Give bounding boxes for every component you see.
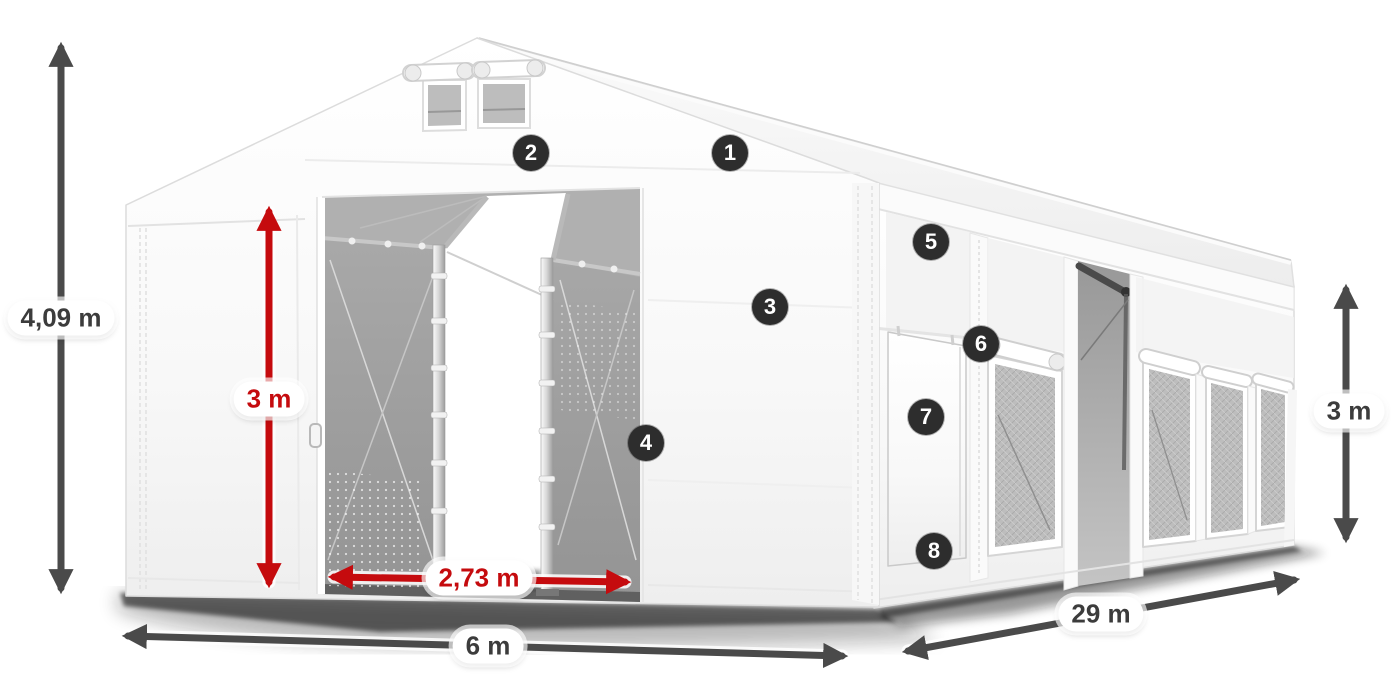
side-height-label: 3 m	[1314, 394, 1385, 429]
marker-8[interactable]: 8	[916, 533, 952, 569]
front-door-interior	[310, 188, 643, 602]
tent-dimension-diagram: 4,09 m 3 m 2,73 m 6 m 29 m 3 m 1 2 3 4 5…	[0, 0, 1400, 700]
side-window-2	[1143, 356, 1196, 547]
marker-7[interactable]: 7	[908, 399, 944, 435]
side-door-panel	[888, 326, 966, 566]
door-height-label: 3 m	[234, 382, 305, 417]
marker-2[interactable]: 2	[513, 135, 549, 171]
door-width-label: 2,73 m	[426, 561, 533, 596]
length-label: 29 m	[1058, 597, 1143, 632]
marker-1[interactable]: 1	[712, 135, 748, 171]
side-window-3	[1206, 372, 1248, 539]
side-window-1	[984, 337, 1065, 556]
marker-4[interactable]: 4	[628, 425, 664, 461]
marker-5[interactable]: 5	[913, 224, 949, 260]
tent-illustration	[0, 0, 1400, 700]
side-window-4	[1256, 379, 1290, 531]
marker-6[interactable]: 6	[963, 326, 999, 362]
total-height-label: 4,09 m	[8, 301, 115, 336]
width-label: 6 m	[453, 629, 524, 664]
marker-3[interactable]: 3	[752, 289, 788, 325]
open-side-doorway	[1078, 261, 1131, 586]
